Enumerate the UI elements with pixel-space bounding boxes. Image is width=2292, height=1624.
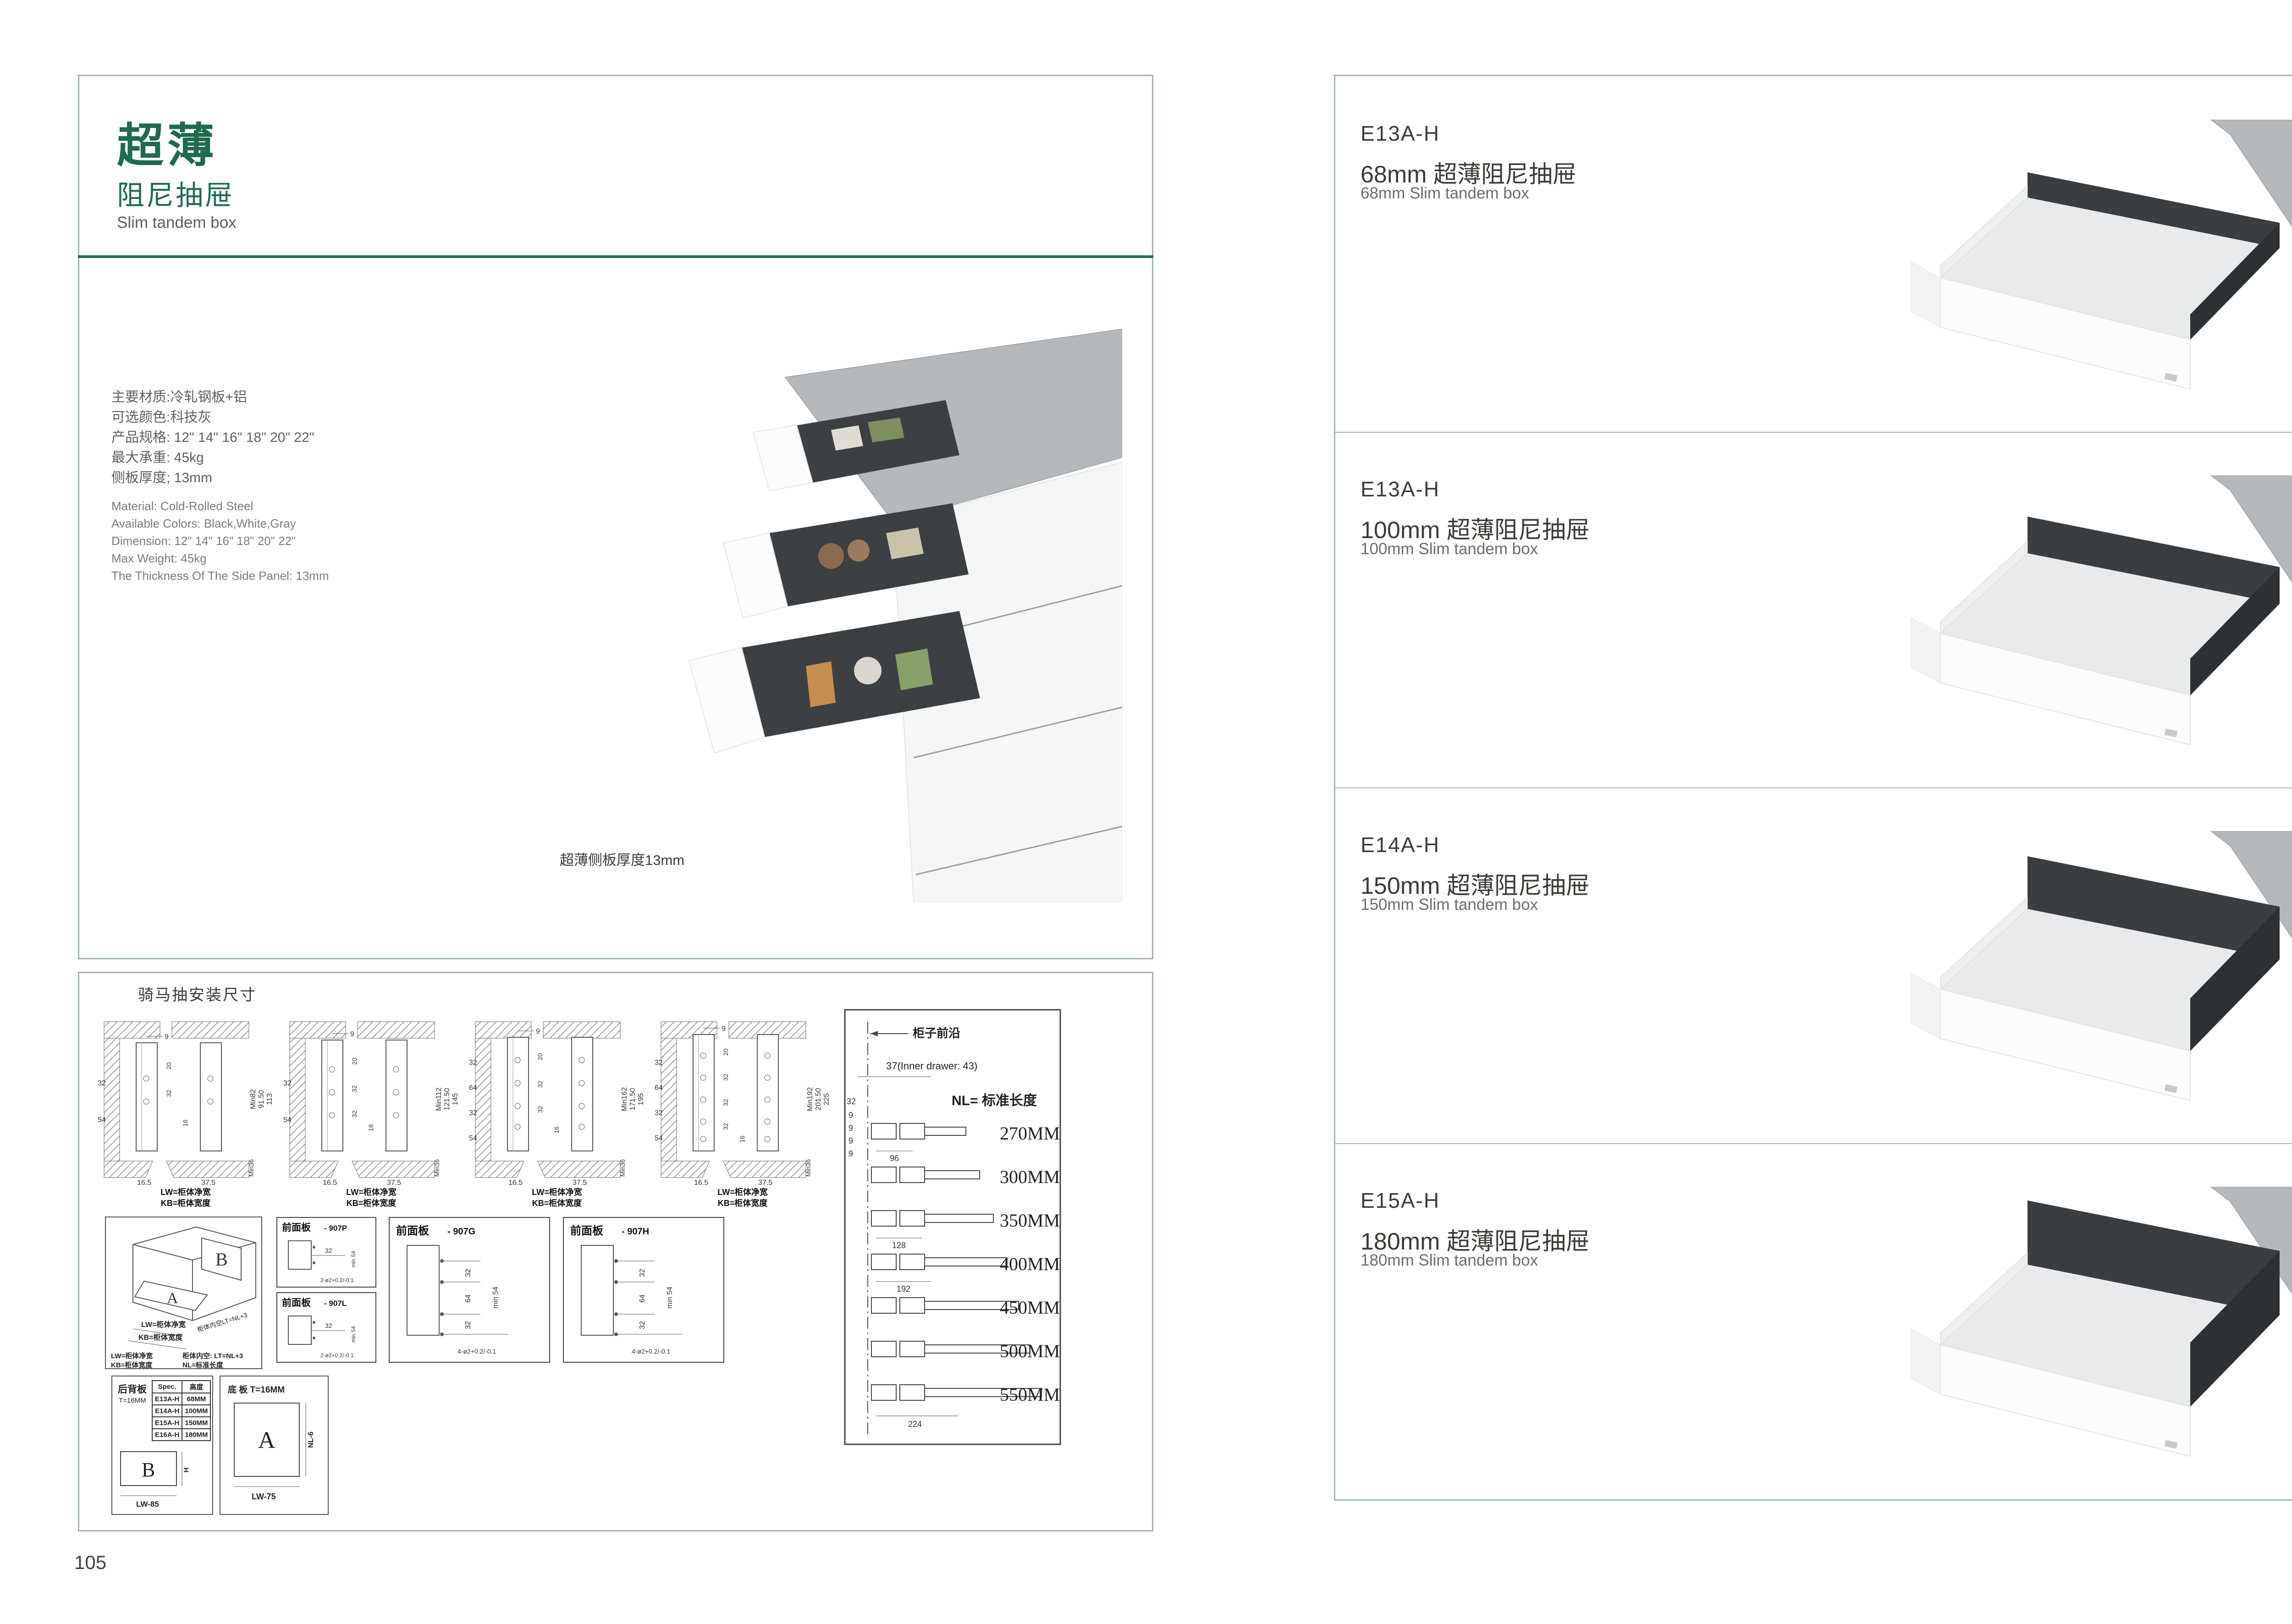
table-cell: 68MM	[182, 1393, 210, 1405]
left-drawings-box: 骑马抽安装尺寸 9 20 32 16	[78, 972, 1153, 1531]
dim-inner: 20	[165, 1062, 172, 1069]
product-render-180mm	[1890, 1187, 2292, 1466]
dim-min36: Min36	[804, 1159, 812, 1177]
spacing-label: 192	[897, 1284, 910, 1294]
dim-bottom: 37.5	[573, 1179, 587, 1187]
kb-label: KB=柜体宽度	[718, 1198, 768, 1207]
dim-min36: Min36	[433, 1159, 441, 1177]
panel-code: - 907G	[447, 1227, 475, 1237]
dim-right: 145	[452, 1093, 459, 1106]
cabinet-walls	[475, 1022, 620, 1178]
h-dim-label: H	[182, 1468, 190, 1473]
left-content-box: 主要材质:冷轧钢板+铝 可选颜色:科技灰 产品规格: 12" 14" 16" 1…	[78, 258, 1153, 959]
panel-dim: 32	[464, 1269, 472, 1277]
nl6-label: NL-6	[307, 1431, 315, 1448]
dim-bottom: 16.5	[323, 1179, 337, 1187]
bottom-panel-box: 底 板 T=16MM A NL-6 LW-75	[220, 1376, 329, 1515]
dim-right: Min112	[435, 1087, 443, 1111]
inner-drawer-label: 37(Inner drawer: 43)	[886, 1060, 977, 1072]
product-code: E13A-H	[1361, 121, 1440, 146]
left-dim: 9	[848, 1136, 853, 1145]
dim-right: 121.50	[443, 1088, 451, 1110]
dim-inner: 32	[722, 1123, 729, 1130]
panel-b-label: B	[215, 1249, 228, 1270]
kb-label: KB=柜体宽度	[347, 1198, 397, 1207]
kb-label: KB=柜体宽度	[532, 1198, 583, 1207]
page-subtitle-cn: 阻尼抽屉	[117, 173, 234, 213]
product-render-150mm	[1890, 831, 2292, 1111]
dim-right: 113	[266, 1093, 274, 1105]
legend-lt: 柜体内空: LT=NL+3	[182, 1352, 243, 1360]
dim-bottom: 16.5	[137, 1179, 151, 1187]
col-header: 高度	[182, 1381, 210, 1393]
dim-inner: 20	[536, 1053, 544, 1060]
panel-code: - 907L	[324, 1299, 347, 1308]
product-code: E13A-H	[1361, 477, 1440, 501]
legend-lw: LW=柜体净宽	[111, 1352, 153, 1360]
dim-mid: 16	[367, 1124, 375, 1131]
table-cell: E16A-H	[152, 1429, 182, 1441]
image-caption: 超薄侧板厚度13mm	[560, 848, 684, 869]
dim-bottom: 16.5	[508, 1179, 523, 1187]
panel-dim: 32	[464, 1321, 472, 1329]
dim-mid: 16	[553, 1126, 560, 1134]
dim-top: 9	[165, 1033, 169, 1041]
bottom-panel-diagram: A NL-6 LW-75	[225, 1398, 323, 1510]
legend-kb: KB=柜体宽度	[111, 1361, 153, 1369]
panel-title: 前面板	[570, 1224, 604, 1237]
dim-left: 54	[283, 1116, 292, 1124]
back-panel-title: 后背板	[118, 1382, 147, 1396]
panel-title: 前面板	[282, 1297, 311, 1308]
dim-left: 32	[469, 1059, 477, 1067]
page-number-left: 105	[74, 1552, 106, 1574]
dim-inner: 32	[722, 1099, 729, 1106]
back-panel-box: 后背板 T=16MM Spec. 高度 E13A-H 68MM E14A-H 1…	[111, 1376, 213, 1515]
lw75-label: LW-75	[252, 1492, 276, 1501]
open-drawer	[1911, 172, 2280, 389]
dim-left: 54	[98, 1116, 106, 1124]
spec-line: 最大承重: 45kg	[111, 448, 314, 468]
dim-right: 91.50	[258, 1090, 265, 1108]
spec-line: Max Weight: 45kg	[111, 550, 329, 567]
open-drawer	[1911, 856, 2280, 1101]
dim-right: 195	[637, 1093, 645, 1106]
lw-label: LW=柜体净宽	[346, 1187, 397, 1197]
left-dim: 9	[848, 1149, 853, 1158]
spec-line: The Thickness Of The Side Panel: 13mm	[111, 567, 329, 584]
section-divider	[1335, 1143, 2292, 1144]
install-cross-section-180: 9 20 32 32 32 16 32 64 32 54 Min192 201.…	[655, 1010, 833, 1207]
dim-left: 32	[98, 1079, 106, 1087]
panel-min: min 54	[666, 1287, 674, 1309]
spec-line: 可选颜色:科技灰	[111, 407, 314, 428]
specs-english: Material: Cold-Rolled Steel Available Co…	[111, 497, 329, 584]
back-panel-diagram: B H LW-85	[115, 1448, 209, 1512]
panel-min: min 54	[350, 1251, 357, 1267]
panel-dim: 32	[325, 1322, 332, 1329]
dim-inner: 32	[536, 1080, 544, 1088]
panel-holes: 4-ø2+0.2/-0.1	[632, 1348, 671, 1355]
front-edge-label: 柜子前沿	[913, 1026, 960, 1040]
rail-profiles	[136, 1043, 221, 1151]
nl-definition: NL= 标准长度	[952, 1093, 1037, 1108]
dim-inner: 20	[351, 1057, 358, 1065]
dim-inner: 32	[351, 1085, 358, 1092]
dim-top: 9	[350, 1030, 354, 1038]
right-products-box: E13A-H 68mm 超薄阻尼抽屉 68mm Slim tandem box …	[1334, 75, 2292, 1501]
table-cell: 100MM	[182, 1405, 210, 1417]
shape-a-label: A	[258, 1427, 275, 1453]
legend-nl: NL=标准长度	[182, 1361, 224, 1369]
spec-line: 侧板厚度; 13mm	[111, 468, 314, 488]
install-cross-section-100: 9 20 32 32 16 32 54 Min112 121.50 145 16…	[283, 1010, 462, 1207]
lw-label: LW=柜体净宽	[160, 1187, 211, 1197]
dim-left: 32	[469, 1109, 477, 1117]
dim-right: Min192	[806, 1087, 814, 1112]
panel-holes: 2-ø2+0.2/-0.1	[320, 1352, 354, 1359]
catalog-spread: 超薄 阻尼抽屉 Slim tandem box 主要材质:冷轧钢板+铝 可选颜色…	[0, 0, 2292, 1624]
product-render-68mm	[1890, 120, 2292, 399]
dim-inner: 32	[165, 1090, 172, 1097]
col-header: Spec.	[152, 1381, 182, 1393]
panel-dim: 64	[639, 1294, 646, 1303]
table-cell: E14A-H	[152, 1405, 182, 1417]
shape-b-label: B	[142, 1459, 155, 1481]
dim-left: 64	[469, 1084, 477, 1092]
front-panel-907H: 前面板 - 907H 32 64 32 min 54 4-ø2+0.2/-0.1	[563, 1217, 724, 1363]
dim-inner: 32	[722, 1073, 729, 1081]
panel-dim: 32	[639, 1269, 646, 1277]
front-panel-907G: 前面板 - 907G 32 64 32 min 54 4-ø2+0.2/-0.1	[389, 1217, 550, 1363]
dim-right: 171.50	[629, 1088, 637, 1110]
drawer-cabinet-render	[538, 318, 1122, 902]
panel-holes: 4-ø2+0.2/-0.1	[457, 1348, 496, 1355]
length-label: 400MM	[1000, 1254, 1060, 1274]
dim-left: 32	[655, 1109, 663, 1117]
dim-inner: 32	[536, 1106, 544, 1113]
length-label: 270MM	[1000, 1123, 1060, 1144]
panel-a-label: A	[167, 1290, 178, 1307]
left-dim: 32	[847, 1097, 856, 1106]
panel-dim: 64	[464, 1294, 472, 1303]
open-drawer	[1911, 517, 2280, 745]
nl-length-table: 柜子前沿 37(Inner drawer: 43) 32 9 9 9 9 NL=…	[844, 1009, 1061, 1445]
product-subtitle-en: 150mm Slim tandem box	[1361, 896, 1538, 914]
dim-bottom: 37.5	[758, 1179, 772, 1187]
front-panel-907P: 前面板 - 907P 32 min 54 2-ø2+0.2/-0.1	[276, 1217, 376, 1288]
cabinet-walls	[104, 1022, 249, 1178]
panel-title: 前面板	[396, 1224, 430, 1237]
product-code: E14A-H	[1361, 832, 1440, 857]
length-label: 500MM	[1000, 1341, 1060, 1361]
product-subtitle-en: 180mm Slim tandem box	[1361, 1251, 1538, 1270]
lw-label: LW=柜体净宽	[532, 1187, 582, 1197]
panel-code: - 907H	[622, 1227, 649, 1237]
rail-profiles	[322, 1040, 407, 1151]
dim-min36: Min36	[619, 1159, 626, 1177]
spacing-label: 224	[908, 1420, 922, 1429]
dim-mid: 16	[182, 1119, 189, 1127]
dim-left: 54	[655, 1134, 663, 1142]
spacing-label: 96	[890, 1154, 899, 1163]
page-title-cn: 超薄	[117, 108, 218, 176]
spec-line: 产品规格: 12" 14" 16" 18" 20" 22"	[111, 428, 314, 448]
dim-left: 64	[655, 1084, 663, 1092]
spacing-label: 128	[892, 1241, 906, 1250]
left-title-box: 超薄 阻尼抽屉 Slim tandem box	[78, 75, 1153, 257]
panel-min: min 54	[350, 1326, 357, 1343]
open-drawer	[1911, 1200, 2280, 1456]
dim-bottom: 37.5	[201, 1179, 215, 1187]
dim-left: 32	[655, 1059, 663, 1067]
dim-top: 9	[722, 1025, 726, 1033]
panel-title: 前面板	[282, 1222, 311, 1233]
lw85-label: LW-85	[136, 1500, 159, 1508]
table-cell: 150MM	[182, 1417, 210, 1429]
dim-left: 54	[469, 1134, 477, 1142]
rail-profiles	[693, 1035, 778, 1151]
table-cell: 180MM	[182, 1429, 210, 1441]
panel-dim: 32	[325, 1247, 332, 1254]
dim-right: Min162	[621, 1087, 628, 1112]
dim-bottom: 37.5	[387, 1179, 401, 1187]
cabinet-walls	[661, 1022, 806, 1178]
left-dim: 9	[848, 1123, 853, 1133]
panel-code: - 907P	[324, 1224, 347, 1233]
rail-profiles	[507, 1037, 593, 1151]
bottom-panel-title: 底 板 T=16MM	[228, 1383, 285, 1395]
dim-top: 9	[536, 1028, 540, 1035]
back-panel-thickness: T=16MM	[119, 1397, 146, 1404]
panel-min: min 54	[492, 1287, 500, 1309]
table-cell: E13A-H	[152, 1393, 182, 1405]
lw-label: LW=柜体净宽	[717, 1187, 768, 1197]
page-subtitle-en: Slim tandem box	[117, 214, 237, 232]
spec-line: Dimension: 12" 14" 16" 18" 20" 22"	[111, 532, 329, 550]
dim-right: 225	[823, 1093, 831, 1106]
length-label: 350MM	[1000, 1210, 1060, 1231]
spec-line: Available Colors: Black,White,Gray	[111, 515, 329, 532]
kb-label: KB=柜体宽度	[161, 1198, 211, 1207]
dim-inner: 32	[351, 1110, 358, 1118]
iso-kb-label: KB=柜体宽度	[138, 1333, 183, 1342]
table-cell: E15A-H	[152, 1417, 182, 1429]
product-code: E15A-H	[1361, 1188, 1440, 1213]
spec-line: Material: Cold-Rolled Steel	[111, 497, 329, 515]
panel-dim: 32	[639, 1321, 646, 1329]
section-divider	[1335, 787, 2292, 788]
product-render-100mm	[1890, 475, 2292, 755]
cabinet-walls	[290, 1022, 435, 1178]
length-label: 300MM	[1000, 1167, 1060, 1187]
dim-right: 201.50	[815, 1088, 822, 1110]
main-product-image: 超薄侧板厚度13mm	[538, 318, 1122, 902]
section-divider	[1335, 432, 2292, 433]
dim-mid: 16	[738, 1135, 746, 1143]
panel-holes: 2-ø2+0.2/-0.1	[320, 1277, 354, 1283]
product-subtitle-en: 68mm Slim tandem box	[1361, 184, 1529, 203]
length-label: 550MM	[1000, 1384, 1060, 1405]
iso-cabinet-diagram: B A LW=柜体净宽 KB=柜体宽度 柜体内空LT=NL+3 LW=柜体净宽 …	[105, 1216, 263, 1370]
spec-height-table: Spec. 高度 E13A-H 68MM E14A-H 100MM E15A-H…	[152, 1380, 211, 1441]
front-panel-907L: 前面板 - 907L 32 min 54 2-ø2+0.2/-0.1	[276, 1292, 376, 1363]
install-cross-section-68: 9 20 32 16 32 54 Min82 91.50 113 16.5 37…	[98, 1010, 276, 1207]
product-subtitle-en: 100mm Slim tandem box	[1361, 540, 1538, 558]
length-label: 450MM	[1000, 1297, 1060, 1318]
install-cross-section-150: 9 20 32 32 16 32 64 32 54 Min162 171.50 …	[469, 1010, 648, 1207]
spec-line: 主要材质:冷轧钢板+铝	[111, 387, 314, 407]
left-dim: 9	[848, 1111, 853, 1120]
specs-chinese: 主要材质:冷轧钢板+铝 可选颜色:科技灰 产品规格: 12" 14" 16" 1…	[111, 387, 314, 488]
dim-inner: 20	[722, 1048, 729, 1056]
dim-left: 32	[283, 1079, 292, 1087]
dim-right: Min82	[249, 1089, 257, 1109]
drawings-title: 骑马抽安装尺寸	[138, 982, 257, 1005]
dim-min36: Min36	[248, 1159, 255, 1177]
dim-bottom: 16.5	[694, 1179, 708, 1187]
iso-lw-label: LW=柜体净宽	[141, 1320, 186, 1329]
